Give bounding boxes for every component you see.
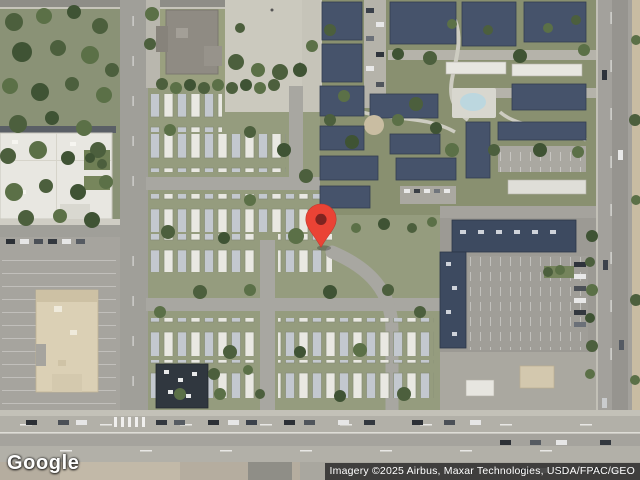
main-road-south [0, 410, 640, 462]
parking-lot-west [2, 239, 116, 410]
google-logo[interactable]: Google [7, 452, 80, 475]
map-viewport[interactable]: Google Imagery ©2025 Airbus, Maxar Techn… [0, 0, 640, 480]
southwest-buildings [156, 364, 208, 408]
satellite-imagery[interactable] [0, 0, 640, 480]
map-attribution: Imagery ©2025 Airbus, Maxar Technologies… [325, 463, 640, 480]
